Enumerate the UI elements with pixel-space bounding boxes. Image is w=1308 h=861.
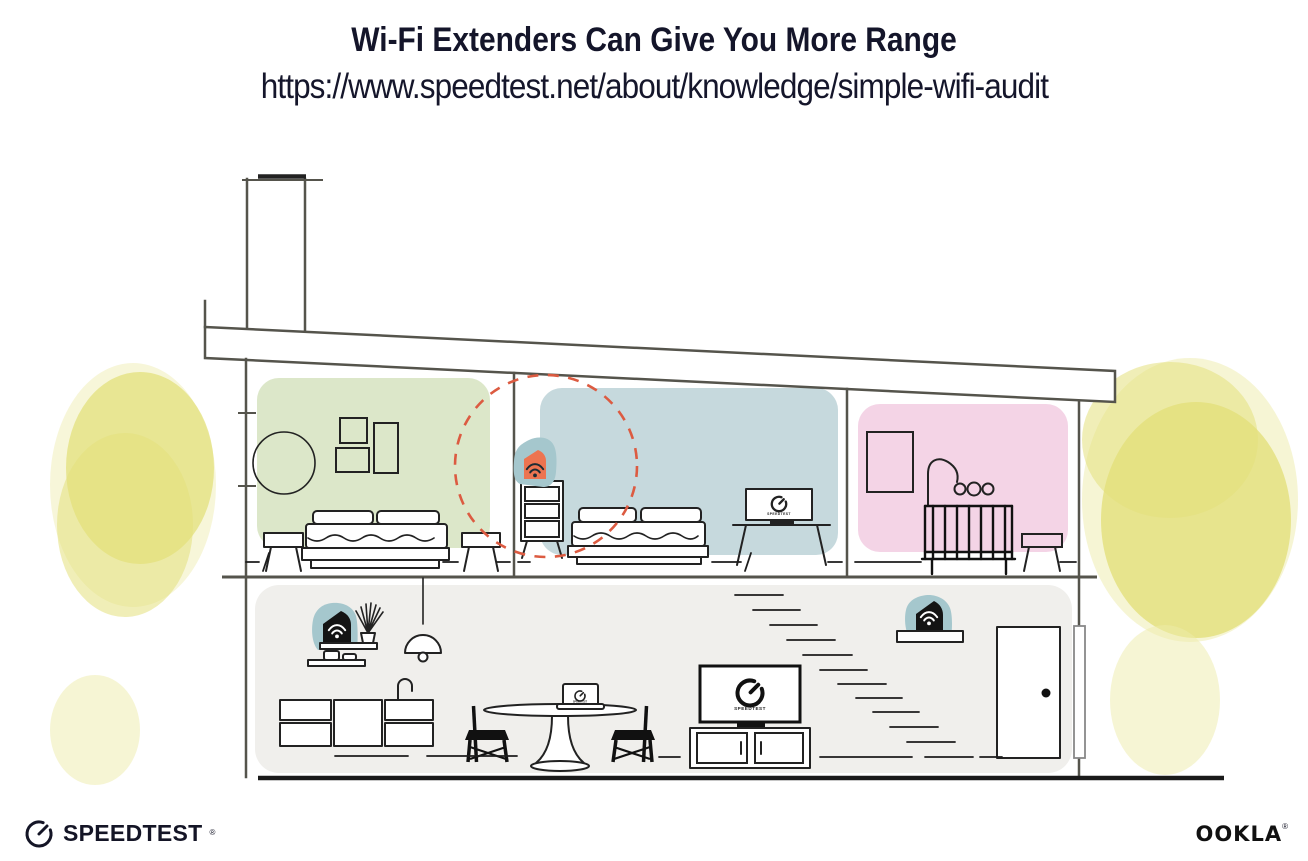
nightstand-left [264, 533, 303, 571]
tv-living-room: SPEEDTEST [700, 666, 800, 727]
svg-text:SPEEDTEST: SPEEDTEST [767, 512, 791, 516]
ookla-wordmark: OOKLA [1195, 822, 1282, 846]
downspout [1074, 626, 1085, 758]
nursery-pink-wall [858, 404, 1068, 552]
foliage-left [50, 363, 216, 785]
registered-mark: ® [209, 828, 215, 838]
shelf-upper [320, 643, 377, 649]
ookla-logo: OOKLA® [1195, 822, 1288, 846]
house-illustration: SPEEDTEST [0, 0, 1308, 861]
tv-console [690, 728, 810, 768]
wifi-extender-upstairs [514, 437, 557, 487]
floor-marks [335, 756, 1002, 757]
doorknob [1042, 689, 1051, 698]
laptop: SPEEDTEST [557, 684, 604, 709]
door [997, 627, 1060, 758]
foliage-right [1082, 358, 1298, 775]
speedometer-icon [22, 816, 56, 850]
hallway-shelf [897, 631, 963, 642]
speedtest-wordmark: SPEEDTEST [63, 820, 202, 847]
speedtest-logo: SPEEDTEST® [22, 816, 215, 850]
nightstand-right [462, 533, 500, 571]
svg-text:SPEEDTEST: SPEEDTEST [734, 706, 766, 711]
registered-mark: ® [1282, 822, 1288, 831]
